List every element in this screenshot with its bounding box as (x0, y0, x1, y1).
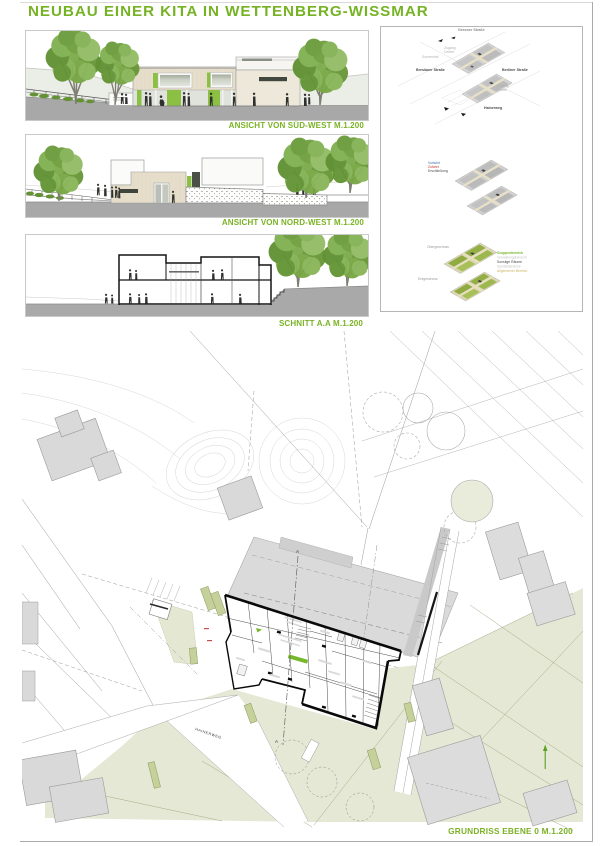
svg-text:Gessner Straße: Gessner Straße (458, 28, 485, 32)
svg-text:Hainerweg: Hainerweg (484, 106, 502, 110)
svg-text:Sonstige Räume: Sonstige Räume (497, 260, 522, 264)
svg-text:Gruppenbereich: Gruppenbereich (497, 251, 523, 255)
svg-text:A: A (275, 739, 278, 744)
svg-text:Allgemeiner Bereich: Allgemeiner Bereich (497, 269, 527, 273)
svg-text:Erdgeschoss: Erdgeschoss (418, 277, 438, 281)
svg-text:Sanitärbereiche: Sanitärbereiche (497, 265, 521, 269)
svg-text:Breslauer Straße: Breslauer Straße (416, 68, 445, 72)
svg-text:A: A (296, 549, 299, 554)
svg-text:Center: Center (444, 50, 455, 54)
svg-text:Verwaltungsbereich: Verwaltungsbereich (497, 256, 527, 260)
svg-text:Erschließung: Erschließung (428, 169, 448, 173)
svg-text:Obergeschoss: Obergeschoss (427, 245, 449, 249)
svg-text:Berliner Straße: Berliner Straße (502, 68, 528, 72)
svg-text:Center: Center (497, 88, 508, 92)
svg-text:Sonnenhof: Sonnenhof (422, 55, 438, 59)
